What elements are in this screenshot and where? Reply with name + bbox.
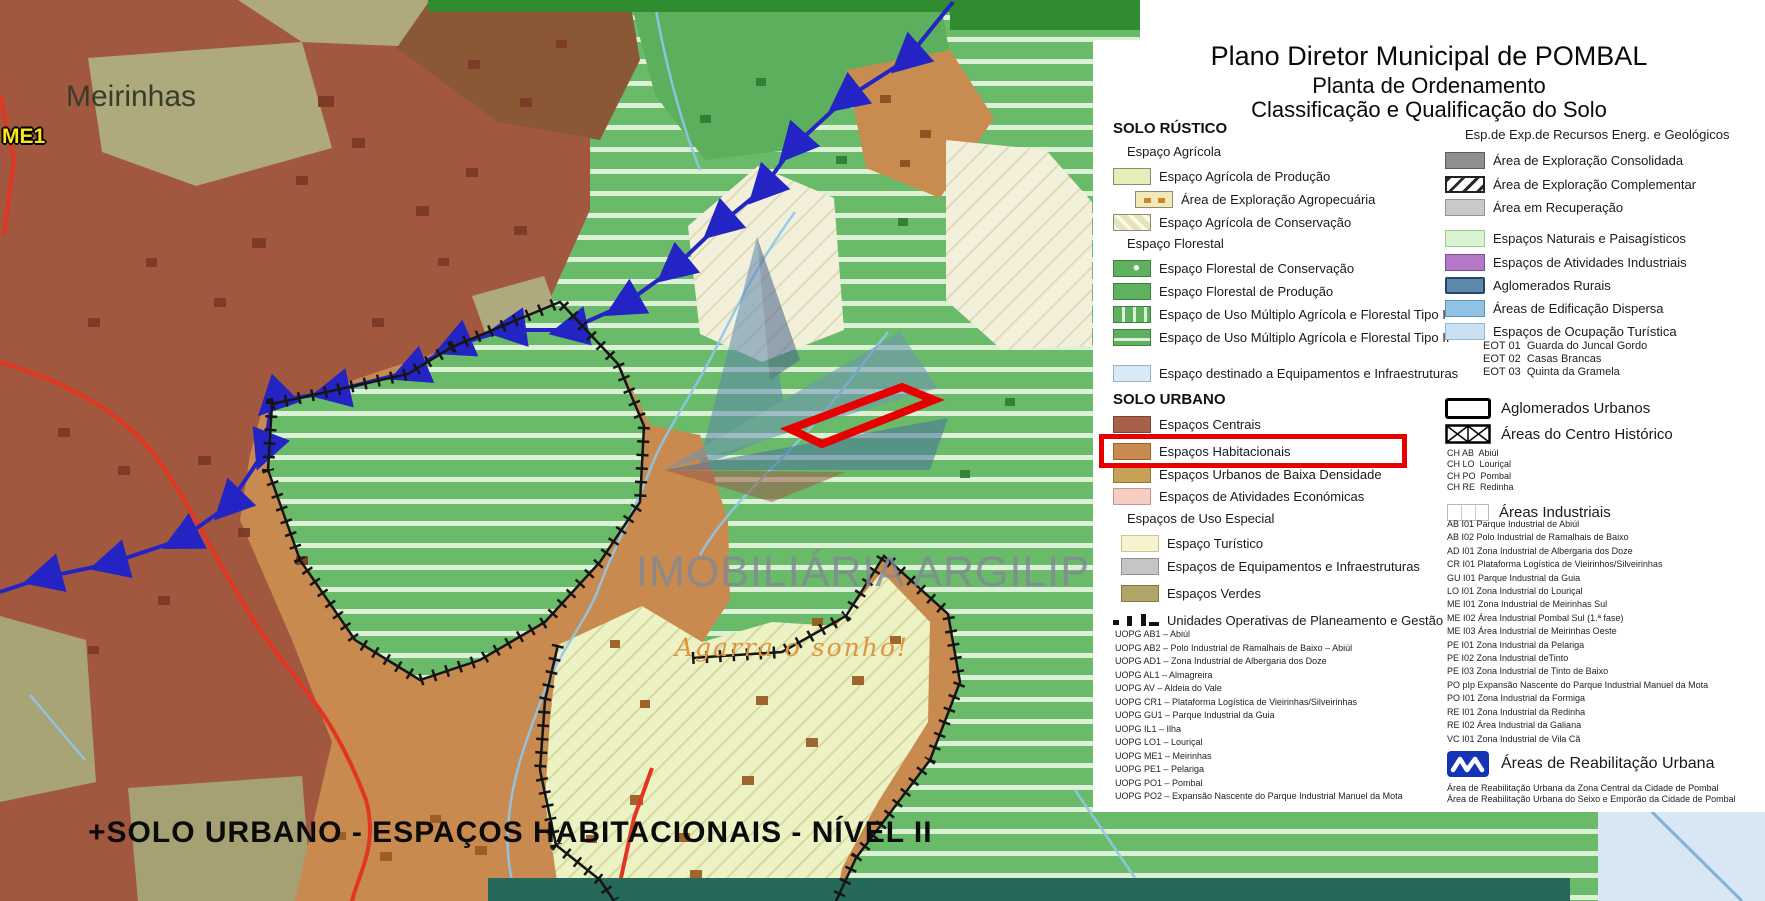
legend-row-ocupacao-turistica: Espaços de Ocupação Turística	[1445, 321, 1677, 341]
legend-list-line: UOPG CR1 – Plataforma Logística de Vieir…	[1115, 696, 1403, 710]
legend-row-exploracao-consolidada: Área de Exploração Consolidada	[1445, 150, 1683, 170]
legend-label: Espaços de Equipamentos e Infraestrutura…	[1167, 559, 1420, 574]
legend-label: Espaços Urbanos de Baixa Densidade	[1159, 467, 1382, 482]
swatch-naturais-paisagisticos	[1445, 230, 1485, 247]
swatch-uso-multiplo-2	[1113, 329, 1151, 346]
legend-row-florestal-conservacao: Espaço Florestal de Conservação	[1113, 258, 1354, 278]
legend-label: Espaço Florestal de Produção	[1159, 284, 1333, 299]
legend-row-espacos-centrais: Espaços Centrais	[1113, 414, 1261, 434]
swatch-florestal-producao	[1113, 283, 1151, 300]
legend-list-line: UOPG IL1 – Ilha	[1115, 723, 1403, 737]
legend-list-line: PO I01 Zona Industrial da Formiga	[1447, 692, 1708, 705]
legend-list-line: UOPG LO1 – Louriçal	[1115, 736, 1403, 750]
legend-list-line: RE I01 Zona Industrial da Redinha	[1447, 706, 1708, 719]
swatch-baixa-densidade	[1113, 466, 1151, 483]
uopg-line-symbol	[1113, 612, 1159, 628]
legend-label: Áreas de Edificação Dispersa	[1493, 301, 1664, 316]
legend-row-agricola-conservacao: Espaço Agrícola de Conservação	[1113, 212, 1351, 232]
legend-label: Espaços de Atividades Económicas	[1159, 489, 1364, 504]
swatch-area-recuperacao	[1445, 199, 1485, 216]
legend-list-line: UOPG AD1 – Zona Industrial de Albergaria…	[1115, 655, 1403, 669]
swatch-atividades-economicas	[1113, 488, 1151, 505]
legend-list-line: UOPG ME1 – Meirinhas	[1115, 750, 1403, 764]
swatch-atividades-industriais	[1445, 254, 1485, 271]
watermark-slogan-text: Agarra o sonho!	[652, 633, 932, 662]
eot-list: EOT 01 Guarda do Juncal GordoEOT 02 Casa…	[1483, 340, 1647, 379]
swatch-espacos-centrais	[1113, 416, 1151, 433]
legend-list-line: UOPG PE1 – Pelariga	[1115, 763, 1403, 777]
legend-list-line: Área de Reabilitação Urbana da Zona Cent…	[1447, 783, 1736, 794]
screenshot-stage: Meirinhas ME1 IMOBILIÁRIA ARGILIPE Agarr…	[0, 0, 1765, 901]
legend-label: Área de Exploração Agropecuária	[1181, 192, 1375, 207]
legend-label: Espaços Centrais	[1159, 417, 1261, 432]
legend-label: Aglomerados Rurais	[1493, 278, 1611, 293]
map-place-label: Meirinhas	[66, 80, 196, 114]
legend-label: Espaço Turístico	[1167, 536, 1263, 551]
legend-list-line: CH PO Pombal	[1447, 471, 1514, 482]
legend-label: Espaço Florestal de Conservação	[1159, 261, 1354, 276]
swatch-aglomerados-urbanos	[1445, 398, 1491, 419]
habitacionais-highlight-box	[1099, 434, 1407, 468]
legend-row-atividades-industriais: Espaços de Atividades Industriais	[1445, 252, 1687, 272]
legend-row-exploracao-complementar: Área de Exploração Complementar	[1445, 174, 1696, 194]
swatch-turistico	[1121, 535, 1159, 552]
legend-list-line: ME I02 Área Industrial Pombal Sul (1.ª f…	[1447, 612, 1708, 625]
swatch-florestal-conservacao	[1113, 260, 1151, 277]
legend-row-equip-infra-rustico: Espaço destinado a Equipamentos e Infrae…	[1113, 363, 1458, 383]
panel-subtitle-1: Planta de Ordenamento	[1093, 73, 1765, 99]
legend-label: Unidades Operativas de Planeamento e Ges…	[1167, 613, 1443, 628]
legend-label: Espaços Verdes	[1167, 586, 1261, 601]
legend-label: Espaço Agrícola de Conservação	[1159, 215, 1351, 230]
swatch-ocupacao-turistica	[1445, 323, 1485, 340]
legend-list-line: RE I02 Área Industrial da Galiana	[1447, 719, 1708, 732]
map-code-label: ME1	[2, 125, 45, 149]
legend-row-reabilitacao-urbana: Áreas de Reabilitação Urbana	[1447, 752, 1714, 776]
legend-list-line: UOPG AV – Aldeia do Vale	[1115, 682, 1403, 696]
legend-list-line: UOPG AB1 – Abiúl	[1115, 628, 1403, 642]
legend-row-aglomerados-urbanos: Aglomerados Urbanos	[1445, 396, 1650, 420]
legend-row-uso-multiplo-1: Espaço de Uso Múltiplo Agrícola e Flores…	[1113, 304, 1446, 324]
legend-list-line: AD I01 Zona Industrial de Albergaria dos…	[1447, 545, 1708, 558]
legend-list-line: GU I01 Parque Industrial da Guia	[1447, 572, 1708, 585]
legend-list-line: UOPG PO1 – Pombal	[1115, 777, 1403, 791]
heading-recursos-energeticos: Esp.de Exp.de Recursos Energ. e Geológic…	[1465, 127, 1729, 142]
legend-list-line: PE I01 Zona Industrial da Pelariga	[1447, 639, 1708, 652]
legend-list-line: EOT 02 Casas Brancas	[1483, 353, 1647, 366]
legend-row-agricola-producao: Espaço Agrícola de Produção	[1113, 166, 1330, 186]
legend-label: Área de Exploração Complementar	[1493, 177, 1696, 192]
reabilitacao-urbana-icon	[1447, 751, 1489, 777]
swatch-agricola-producao	[1113, 168, 1151, 185]
legend-list-line: UOPG AL1 – Almagreira	[1115, 669, 1403, 683]
heading-reabilitacao-urbana: Áreas de Reabilitação Urbana	[1501, 755, 1714, 773]
legend-label: Espaço destinado a Equipamentos e Infrae…	[1159, 366, 1458, 381]
legend-label: Áreas do Centro Histórico	[1501, 426, 1673, 443]
subheading-espaco-florestal: Espaço Florestal	[1127, 236, 1224, 251]
legend-list-line: ME I01 Zona Industrial de Meirinhas Sul	[1447, 598, 1708, 611]
legend-row-atividades-economicas: Espaços de Atividades Económicas	[1113, 486, 1364, 506]
heading-solo-urbano: SOLO URBANO	[1113, 391, 1226, 408]
swatch-exploracao-consolidada	[1445, 152, 1485, 169]
uopg-list: UOPG AB1 – AbiúlUOPG AB2 – Polo Industri…	[1115, 628, 1403, 804]
legend-list-line: VC I01 Zona Industrial de Vila Cã	[1447, 733, 1708, 746]
swatch-equip-infra-rustico	[1113, 365, 1151, 382]
legend-list-line: Área de Reabilitação Urbana do Seixo e E…	[1447, 794, 1736, 805]
legend-list-line: ME I03 Área Industrial de Meirinhas Oest…	[1447, 625, 1708, 638]
heading-solo-rustico: SOLO RÚSTICO	[1113, 120, 1227, 137]
watermark-brand-text: IMOBILIÁRIA ARGILIPE	[636, 548, 1106, 597]
legend-row-edificacao-dispersa: Áreas de Edificação Dispersa	[1445, 298, 1664, 318]
industrial-areas-list: AB I01 Parque Industrial de AbiúlAB I02 …	[1447, 518, 1708, 746]
legend-label: Espaços Naturais e Paisagísticos	[1493, 231, 1686, 246]
swatch-equipamentos	[1121, 558, 1159, 575]
subheading-uso-especial: Espaços de Uso Especial	[1127, 511, 1274, 526]
legend-row-equipamentos: Espaços de Equipamentos e Infraestrutura…	[1121, 556, 1420, 576]
legend-label: Espaços de Ocupação Turística	[1493, 324, 1677, 339]
legend-list-line: PE I03 Zona Industrial de Tinto de Baixo	[1447, 665, 1708, 678]
legend-row-naturais-paisagisticos: Espaços Naturais e Paisagísticos	[1445, 228, 1686, 248]
legend-row-centro-historico: Áreas do Centro Histórico	[1445, 422, 1673, 446]
legend-label: Área em Recuperação	[1493, 200, 1623, 215]
legend-list-line: UOPG AB2 – Polo Industrial de Ramalhais …	[1115, 642, 1403, 656]
swatch-uso-multiplo-1	[1113, 306, 1151, 323]
legend-row-aglomerados-rurais: Aglomerados Rurais	[1445, 275, 1611, 295]
legend-panel: Plano Diretor Municipal de POMBAL Planta…	[1093, 40, 1765, 812]
swatch-aglomerados-rurais	[1445, 277, 1485, 294]
legend-list-line: UOPG PO2 – Expansão Nascente do Parque I…	[1115, 790, 1403, 804]
legend-label: Aglomerados Urbanos	[1501, 400, 1650, 417]
map-caption-text: +SOLO URBANO - ESPAÇOS HABITACIONAIS - N…	[88, 816, 933, 850]
swatch-espacos-verdes	[1121, 585, 1159, 602]
legend-row-uso-multiplo-2: Espaço de Uso Múltiplo Agrícola e Flores…	[1113, 327, 1449, 347]
legend-row-uopg: Unidades Operativas de Planeamento e Ges…	[1113, 610, 1443, 630]
legend-list-line: UOPG GU1 – Parque Industrial da Guia	[1115, 709, 1403, 723]
legend-list-line: EOT 01 Guarda do Juncal Gordo	[1483, 340, 1647, 353]
swatch-exploracao-complementar	[1445, 176, 1485, 193]
legend-list-line: PE I02 Zona Industrial deTinto	[1447, 652, 1708, 665]
legend-label: Espaços de Atividades Industriais	[1493, 255, 1687, 270]
swatch-edificacao-dispersa	[1445, 300, 1485, 317]
legend-list-line: LO I01 Zona Industrial do Louriçal	[1447, 585, 1708, 598]
legend-list-line: CR I01 Plataforma Logística de Vieirinho…	[1447, 558, 1708, 571]
legend-list-line: CH RE Redinha	[1447, 482, 1514, 493]
legend-list-line: CH AB Abiúl	[1447, 448, 1514, 459]
ch-list: CH AB AbiúlCH LO LouriçalCH PO PombalCH …	[1447, 448, 1514, 493]
legend-label: Área de Exploração Consolidada	[1493, 153, 1683, 168]
legend-row-agropecuaria: Área de Exploração Agropecuária	[1135, 189, 1375, 209]
legend-label: Espaço de Uso Múltiplo Agrícola e Flores…	[1159, 330, 1449, 345]
panel-title: Plano Diretor Municipal de POMBAL	[1093, 41, 1765, 72]
reabilitacao-list: Área de Reabilitação Urbana da Zona Cent…	[1447, 783, 1736, 805]
swatch-centro-historico	[1445, 424, 1491, 444]
legend-label: Espaço de Uso Múltiplo Agrícola e Flores…	[1159, 307, 1446, 322]
legend-row-area-recuperacao: Área em Recuperação	[1445, 197, 1623, 217]
legend-list-line: PO pIp Expansão Nascente do Parque Indus…	[1447, 679, 1708, 692]
legend-label: Espaço Agrícola de Produção	[1159, 169, 1330, 184]
swatch-agropecuaria	[1135, 191, 1173, 208]
legend-list-line: AB I01 Parque Industrial de Abiúl	[1447, 518, 1708, 531]
legend-list-line: CH LO Louriçal	[1447, 459, 1514, 470]
legend-row-florestal-producao: Espaço Florestal de Produção	[1113, 281, 1333, 301]
legend-list-line: EOT 03 Quinta da Gramela	[1483, 366, 1647, 379]
legend-list-line: AB I02 Polo Industrial de Ramalhais de B…	[1447, 531, 1708, 544]
legend-row-turistico: Espaço Turístico	[1121, 533, 1263, 553]
legend-row-espacos-verdes: Espaços Verdes	[1121, 583, 1261, 603]
swatch-agricola-conservacao	[1113, 214, 1151, 231]
subheading-espaco-agricola: Espaço Agrícola	[1127, 144, 1221, 159]
